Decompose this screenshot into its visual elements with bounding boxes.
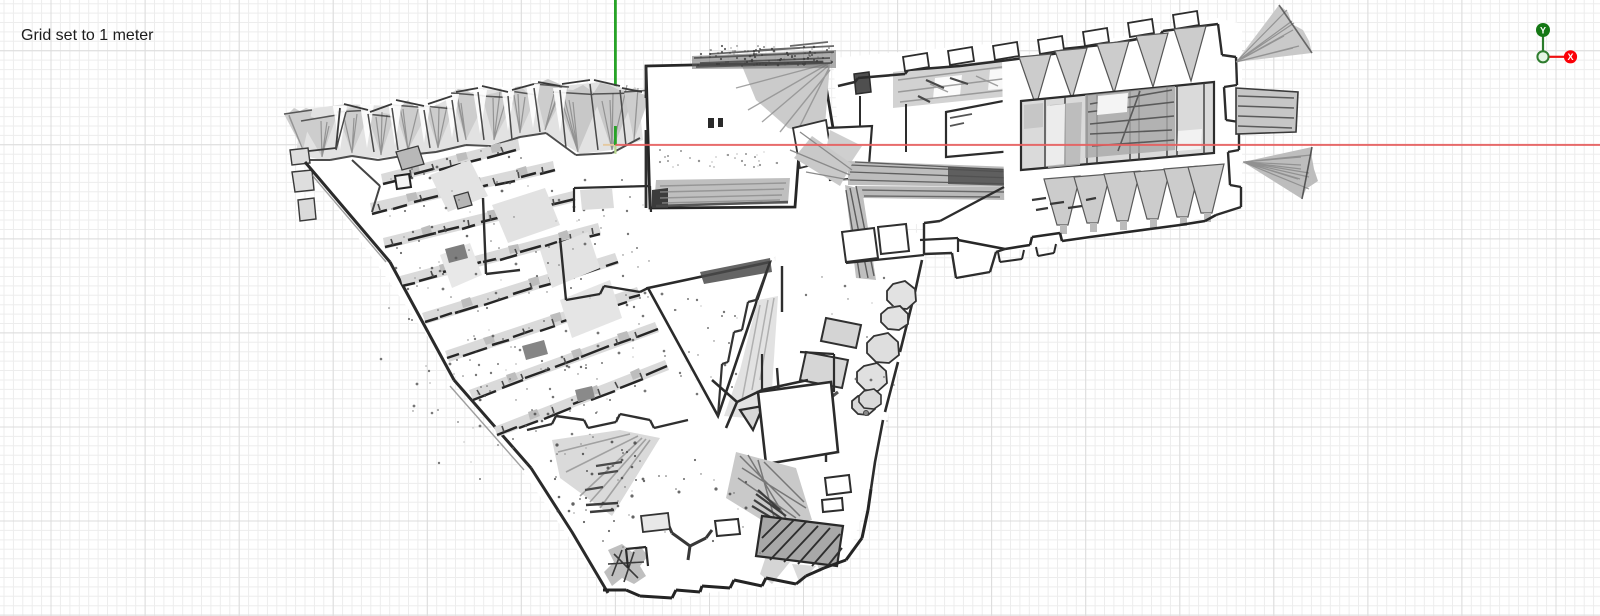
svg-text:X: X (1567, 52, 1573, 62)
svg-text:Grid set to 1 meter: Grid set to 1 meter (21, 27, 154, 44)
svg-text:Y: Y (1540, 25, 1546, 35)
